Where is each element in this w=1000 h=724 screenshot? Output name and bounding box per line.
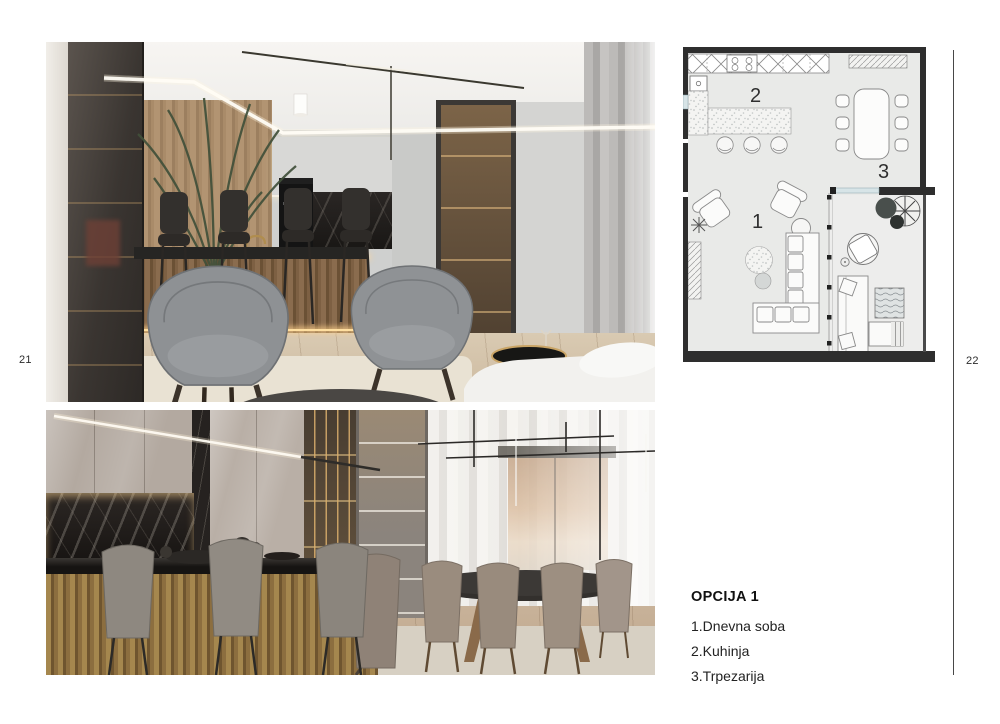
plan-label-dining: 3 [878, 161, 889, 183]
cabinet-column [392, 130, 436, 290]
plan-label-kitchen: 2 [750, 85, 761, 107]
island-stools [717, 137, 787, 153]
legend-title: OPCIJA 1 [691, 589, 911, 605]
kitchen-dining-render [46, 410, 655, 675]
page-number-left: 21 [19, 354, 32, 366]
tv-unit [688, 242, 701, 299]
legend-item: 1.Dnevna soba [691, 614, 911, 639]
living-room-render [46, 42, 655, 402]
island-gold-slats [46, 574, 378, 675]
bar-led-strip [134, 256, 368, 258]
marble-column [192, 410, 210, 562]
plan-dining [836, 89, 908, 159]
portfolio-page: 2 1 3 OPCIJA 1 1.Dnevna soba 2.Kuhinja 3… [0, 0, 1000, 724]
marble-backsplash [46, 493, 194, 563]
floor-plan: 2 1 3 [683, 45, 935, 362]
kitchen-island [708, 108, 791, 134]
balcony-chaise [838, 276, 868, 352]
legend: OPCIJA 1 1.Dnevna soba 2.Kuhinja 3.Trpez… [691, 589, 911, 689]
page-number-right: 22 [966, 355, 979, 367]
legend-item: 3.Trpezarija [691, 664, 911, 689]
glossy-cabinets [46, 410, 196, 495]
plan-label-living-room: 1 [752, 211, 763, 233]
area-rug [378, 626, 655, 675]
bar-slat-front [134, 259, 368, 333]
bar-underglow [134, 329, 368, 331]
legend-item: 2.Kuhinja [691, 639, 911, 664]
island-counter [46, 558, 378, 574]
marble-pillar [46, 42, 68, 402]
sink [690, 76, 707, 91]
marble-backsplash [313, 192, 392, 249]
balcony-window [833, 188, 879, 193]
plant-symbol [691, 217, 707, 233]
stove [727, 55, 757, 72]
shelf-decor [86, 220, 120, 266]
dining-table [854, 89, 889, 159]
page-divider-line [953, 50, 954, 675]
sideboard [849, 55, 907, 68]
balcony-table [875, 288, 904, 318]
tall-cabinets [210, 410, 304, 562]
built-in-oven [279, 178, 313, 254]
window [683, 95, 688, 109]
